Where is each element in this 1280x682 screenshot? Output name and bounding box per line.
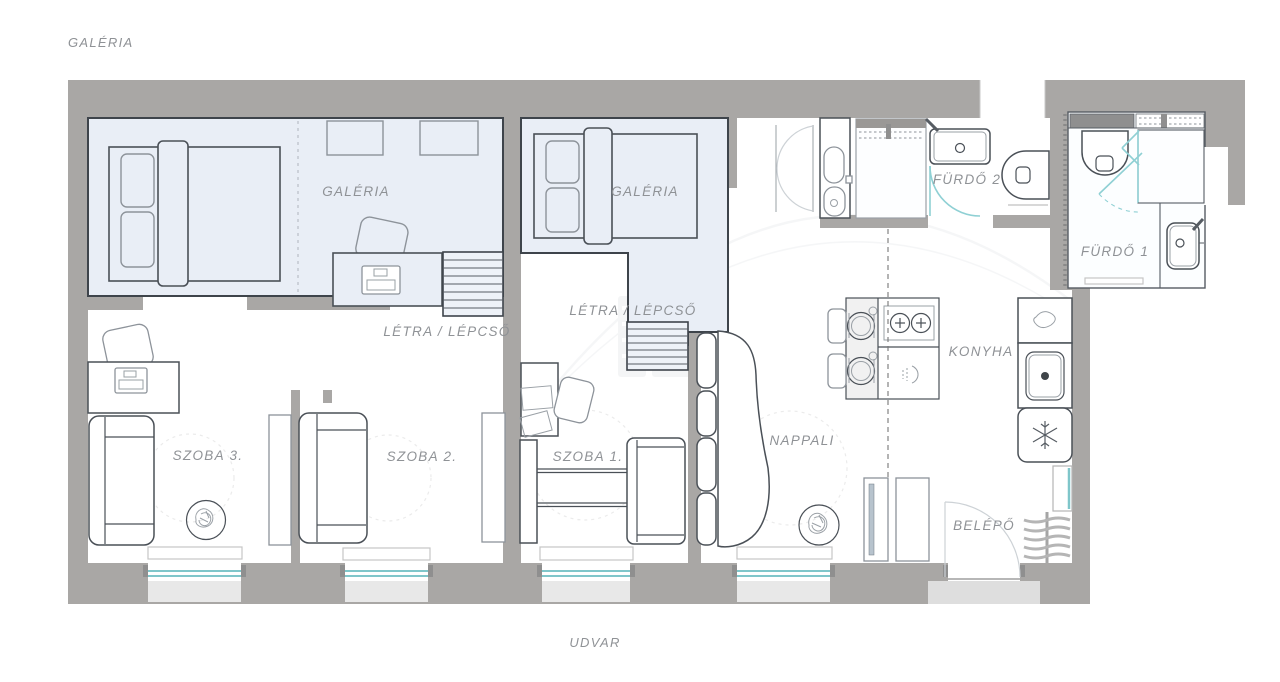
room-furdo1	[1065, 112, 1228, 288]
wall-gallery-floor-a	[88, 296, 143, 310]
sink-icon	[1167, 219, 1204, 269]
window	[732, 563, 835, 602]
radiator-icon	[148, 547, 242, 559]
label-galeria-left: GALÉRIA	[322, 184, 390, 199]
wardrobe-icon	[896, 478, 929, 561]
label-szoba2: SZOBA 2.	[387, 449, 458, 464]
kitchen-island	[846, 298, 939, 399]
sink-icon	[1018, 343, 1072, 408]
window	[143, 563, 246, 602]
shower-channel	[1136, 114, 1204, 128]
floor-plan-canvas: GALÉRIA GALÉRIA GALÉRIA LÉTRA / LÉPCSŐ L…	[0, 0, 1280, 682]
label-szoba1: SZOBA 1.	[553, 449, 624, 464]
double-door-icon	[776, 125, 813, 212]
sofa-icon	[89, 416, 154, 545]
sofa-icon	[697, 331, 769, 547]
toilet-icon	[824, 187, 845, 216]
bath-mat	[1085, 278, 1143, 284]
room-konyha	[828, 229, 1072, 511]
wardrobe-icon	[269, 415, 291, 545]
radiator-icon	[540, 547, 633, 560]
cushion-icon	[420, 121, 478, 155]
label-galeria-top: GALÉRIA	[68, 35, 133, 50]
wardrobe-icon	[864, 478, 888, 561]
window	[537, 563, 635, 602]
wall-right	[1072, 288, 1090, 604]
laundry-closet	[820, 118, 852, 218]
stairs-icon	[443, 252, 503, 316]
wall-unit-1	[503, 118, 521, 563]
wall-stub-top	[728, 118, 737, 188]
label-udvar: UDVAR	[569, 635, 620, 650]
wall-left	[68, 80, 88, 604]
label-konyha: KONYHA	[949, 344, 1014, 359]
bed-icon	[109, 141, 280, 286]
fridge-icon	[1018, 408, 1072, 462]
label-szoba3: SZOBA 3.	[173, 448, 244, 463]
label-letra-left: LÉTRA / LÉPCSŐ	[383, 324, 510, 339]
floor-plan-page: GALÉRIA GALÉRIA GALÉRIA LÉTRA / LÉPCSŐ L…	[0, 0, 1280, 682]
stairs-icon	[627, 322, 688, 370]
shelf	[1070, 114, 1134, 128]
room-furdo2	[776, 118, 1049, 218]
toilet-icon	[1082, 131, 1128, 175]
cooktop-icon	[884, 306, 934, 340]
sofa-icon	[299, 413, 367, 543]
label-belepo: BELÉPŐ	[953, 518, 1015, 533]
wardrobe-icon	[482, 413, 505, 542]
desk-icon	[88, 323, 179, 413]
sink-icon	[926, 119, 990, 164]
label-letra-middle: LÉTRA / LÉPCSŐ	[569, 303, 696, 318]
radiator-icon	[1024, 512, 1070, 563]
radiator-icon	[737, 547, 832, 559]
washing-machine-icon	[824, 147, 844, 183]
toilet-icon	[1002, 151, 1049, 199]
dishwasher-icon	[903, 366, 918, 383]
recess	[1204, 147, 1228, 205]
label-galeria-middle: GALÉRIA	[611, 184, 679, 199]
niche	[980, 80, 1045, 118]
room-szoba3	[88, 323, 291, 559]
label-nappali: NAPPALI	[769, 433, 834, 448]
radiator-icon	[343, 548, 430, 560]
label-furdo1: FÜRDŐ 1	[1081, 244, 1149, 259]
wall-szoba2-stub	[323, 390, 332, 403]
cushion-icon	[327, 121, 383, 155]
tap-icon	[846, 176, 852, 183]
room-szoba2	[299, 413, 505, 560]
label-furdo2: FÜRDŐ 2	[933, 172, 1001, 187]
plant-icon	[187, 501, 226, 540]
desk-icon	[520, 363, 596, 437]
plant-icon	[799, 505, 839, 545]
kitchen-counter	[1018, 298, 1072, 462]
shower-icon	[856, 119, 926, 218]
window	[340, 563, 433, 602]
window-side	[1053, 466, 1072, 511]
